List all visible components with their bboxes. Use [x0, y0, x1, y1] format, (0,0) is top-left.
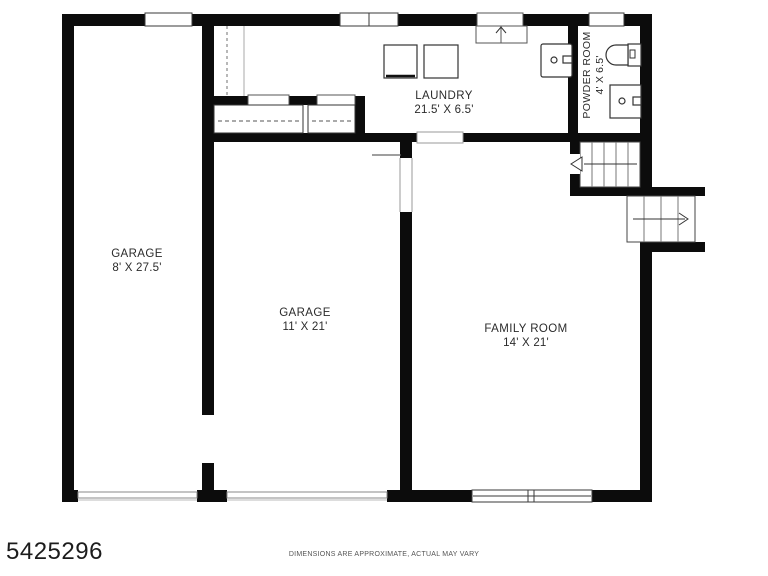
garage-door-2	[227, 490, 387, 502]
floor-plan-drawing	[0, 0, 768, 576]
room-dims: 14' X 21'	[446, 336, 606, 350]
floor-plan-page: GARAGE 8' X 27.5' GARAGE 11' X 21' FAMIL…	[0, 0, 768, 576]
laundry-sink-icon	[541, 44, 572, 77]
room-name: POWDER ROOM	[581, 15, 594, 135]
washer-icon	[384, 45, 417, 78]
room-label-powder-room: POWDER ROOM 4' X 6.5'	[581, 15, 607, 135]
toilet-icon	[606, 44, 641, 66]
exterior-stairs-icon	[627, 196, 695, 242]
room-label-garage-2: GARAGE 11' X 21'	[235, 306, 375, 334]
entry-door-opening	[477, 13, 523, 26]
powder-room-fixtures	[606, 44, 641, 118]
overhead-lines	[227, 26, 244, 96]
room-name: GARAGE	[235, 306, 375, 320]
wall-family-divider-lower	[400, 212, 412, 502]
room-label-family-room: FAMILY ROOM 14' X 21'	[446, 322, 606, 350]
room-name: FAMILY ROOM	[446, 322, 606, 336]
dryer-icon	[424, 45, 458, 78]
wall-laundry-bottom	[462, 133, 652, 142]
wall-right-lower	[640, 242, 652, 502]
wall-garage2-top	[202, 133, 417, 142]
room-dims: 4' X 6.5'	[594, 15, 607, 135]
garage-door-1	[78, 490, 197, 502]
wall-garage-divider-upper	[202, 14, 214, 415]
room-name: GARAGE	[67, 247, 207, 261]
room-dims: 8' X 27.5'	[67, 261, 207, 275]
window-family-room	[472, 490, 592, 502]
wall-stair-bump-bottom	[640, 242, 705, 252]
door-garage-to-family	[372, 155, 413, 212]
disclaimer-text: DIMENSIONS ARE APPROXIMATE, ACTUAL MAY V…	[0, 551, 768, 558]
room-dims: 11' X 21'	[235, 320, 375, 334]
vanity-sink-icon	[610, 85, 641, 118]
wall-right-upper	[640, 14, 652, 196]
closet1-icon	[214, 105, 303, 133]
closet2-door	[317, 95, 355, 106]
room-label-garage-1: GARAGE 8' X 27.5'	[67, 247, 207, 275]
opening-garage-to-garage	[201, 415, 215, 463]
entry-arrow-icon	[476, 26, 527, 43]
opening-laundry-family	[417, 132, 463, 143]
wall-powder-left	[568, 14, 578, 142]
window-laundry	[340, 13, 398, 26]
wall-closet-right	[355, 105, 365, 133]
room-label-laundry: LAUNDRY 21.5' X 6.5'	[374, 89, 514, 117]
room-name: LAUNDRY	[374, 89, 514, 103]
wall-garage-divider-pier	[197, 490, 229, 502]
closet2-icon	[308, 105, 355, 133]
room-dims: 21.5' X 6.5'	[374, 103, 514, 117]
window-garage1	[145, 13, 192, 26]
closet1-door	[248, 95, 289, 106]
wall-stairwell-bottom	[570, 187, 705, 196]
